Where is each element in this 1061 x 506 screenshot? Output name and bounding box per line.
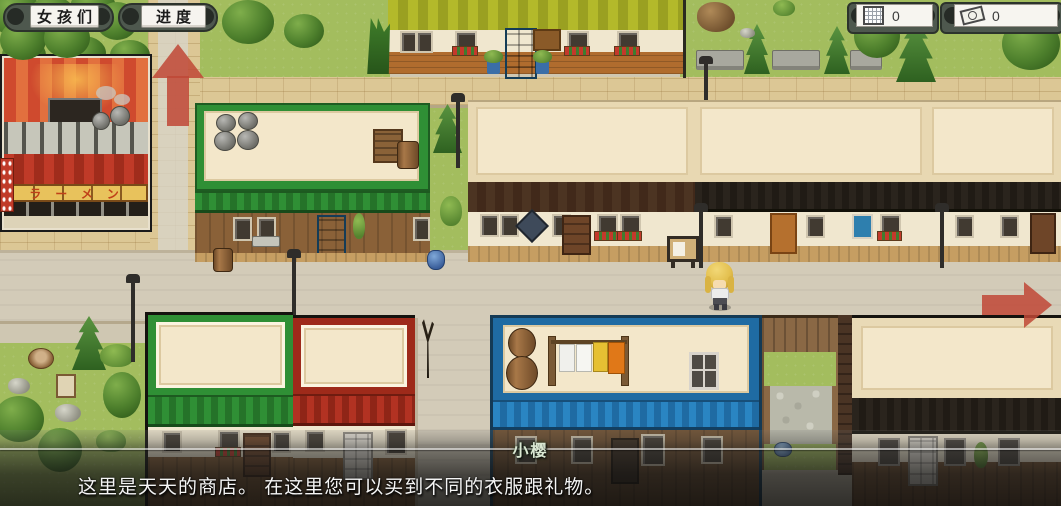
bench (772, 50, 820, 70)
pot (237, 130, 259, 150)
roof-eave (148, 395, 293, 427)
right-arrow-head (1024, 282, 1052, 328)
speaker-name: 小樱 (512, 437, 548, 461)
dialogue-text: 这里是天天的商店。 在这里您可以买到不同的衣服跟礼物。 (78, 472, 1018, 499)
street-lamp-head (699, 56, 713, 64)
player-character (702, 260, 738, 312)
pot (92, 112, 110, 130)
roof-window (689, 352, 719, 390)
money-counter: 0 (954, 4, 1058, 27)
plant (440, 196, 462, 226)
window (806, 215, 825, 238)
girls-button-label: 女孩们 (32, 6, 97, 27)
bush (100, 344, 134, 367)
character-shadow (709, 304, 731, 311)
right-arrow[interactable] (982, 282, 1052, 328)
shop-door[interactable] (1030, 213, 1056, 254)
board-leg (691, 261, 695, 268)
flower-box (617, 231, 642, 241)
roof-eave (293, 394, 415, 426)
posted-paper (673, 242, 685, 256)
up-arrow[interactable] (152, 44, 204, 128)
bread-sign (533, 29, 561, 51)
tree (284, 14, 324, 48)
window (416, 31, 433, 53)
yard-grass (764, 352, 836, 386)
hanging-plant (353, 213, 365, 239)
street-lamp (131, 282, 135, 362)
roof-fascia-dark (695, 182, 1061, 212)
flower-box (452, 46, 478, 56)
rooftop (301, 325, 407, 387)
tree-stump (28, 348, 54, 369)
street-lamp-head (451, 93, 465, 102)
hanging-cloth-white (559, 344, 575, 372)
roof-eave (852, 398, 1061, 434)
street-lamp-head (694, 203, 708, 212)
board-leg (671, 261, 675, 268)
game-scene: ラーメン (0, 0, 1061, 506)
money-counter-value: 0 (992, 8, 1000, 24)
barrel (397, 141, 419, 169)
street-lamp (292, 256, 296, 316)
rock (740, 28, 755, 38)
street-lamp (940, 210, 944, 268)
window (400, 31, 417, 53)
flower-box (877, 231, 902, 241)
basin (252, 236, 280, 247)
right-arrow-shaft (982, 295, 1024, 315)
shop-row-right (468, 100, 1061, 262)
street-lamp-head (126, 274, 140, 283)
tree (222, 0, 274, 44)
hanging-cloth-white (576, 344, 592, 372)
barrel (213, 248, 233, 272)
park-sign[interactable] (56, 374, 76, 398)
rock-brown (697, 2, 735, 32)
rooftop (932, 107, 1054, 175)
ramen-base (4, 216, 148, 228)
plant (533, 50, 552, 63)
pot (216, 114, 236, 132)
calendar-icon (863, 6, 884, 25)
shop-door-orange[interactable] (770, 213, 797, 254)
ramen-shop: ラーメン (0, 50, 152, 232)
ramen-banner (0, 158, 14, 212)
window (233, 217, 252, 241)
up-arrow-head (152, 44, 204, 78)
ramen-balcony (4, 122, 148, 154)
shop-green-roof (195, 103, 430, 262)
pot (238, 112, 258, 130)
dialogue-box[interactable]: 小樱 这里是天天的商店。 在这里您可以买到不同的衣服跟礼物。 (0, 430, 1061, 506)
bush (773, 0, 795, 16)
ramen-sign-text: ラーメン (19, 185, 133, 202)
ramen-sign: ラーメン (4, 184, 148, 202)
rooftop (700, 107, 922, 175)
window-blue (852, 214, 873, 239)
day-counter: 0 (856, 4, 933, 27)
roof-eave (195, 191, 430, 213)
bakery (388, 0, 686, 78)
window (955, 215, 974, 238)
window (480, 214, 499, 237)
pot (214, 131, 236, 151)
ramen-entrance (4, 202, 148, 216)
window (413, 217, 430, 241)
progress-button-label: 进度 (151, 6, 196, 27)
bulletin-board[interactable] (667, 236, 699, 262)
hanging-cloth-yellow (593, 342, 608, 372)
rock (8, 378, 30, 394)
character-foot (722, 304, 727, 310)
up-arrow-shaft (167, 76, 189, 126)
girls-button[interactable]: 女孩们 (30, 5, 99, 28)
roof-eave (493, 400, 759, 430)
character-foot (714, 304, 719, 310)
street-lamp (456, 100, 460, 168)
day-counter-value: 0 (892, 8, 900, 24)
flower-box (594, 231, 619, 241)
steam (96, 86, 116, 100)
window (714, 215, 733, 238)
money-icon (960, 5, 986, 25)
street-lamp-head (935, 203, 949, 212)
roof-fascia-brown (468, 182, 695, 212)
plant (484, 50, 503, 63)
hanging-cloth-orange (608, 342, 625, 374)
flower-box (614, 46, 640, 56)
rooftop (861, 326, 1053, 390)
ramen-awning-lower (4, 154, 148, 186)
rooftop (476, 107, 688, 175)
rooftop (156, 322, 285, 388)
barrel (508, 328, 536, 358)
street-lamp-head (287, 249, 301, 258)
window (1000, 215, 1019, 238)
barrel (506, 356, 538, 390)
shop-wainscot (468, 246, 1061, 262)
pot (110, 106, 130, 126)
blue-vase (427, 250, 445, 270)
tree (103, 372, 141, 418)
shop-door[interactable] (562, 215, 591, 255)
steam (114, 94, 130, 105)
rock (55, 404, 81, 422)
progress-button[interactable]: 进度 (141, 5, 206, 28)
shop-wall (195, 213, 430, 253)
flower-box (564, 46, 590, 56)
